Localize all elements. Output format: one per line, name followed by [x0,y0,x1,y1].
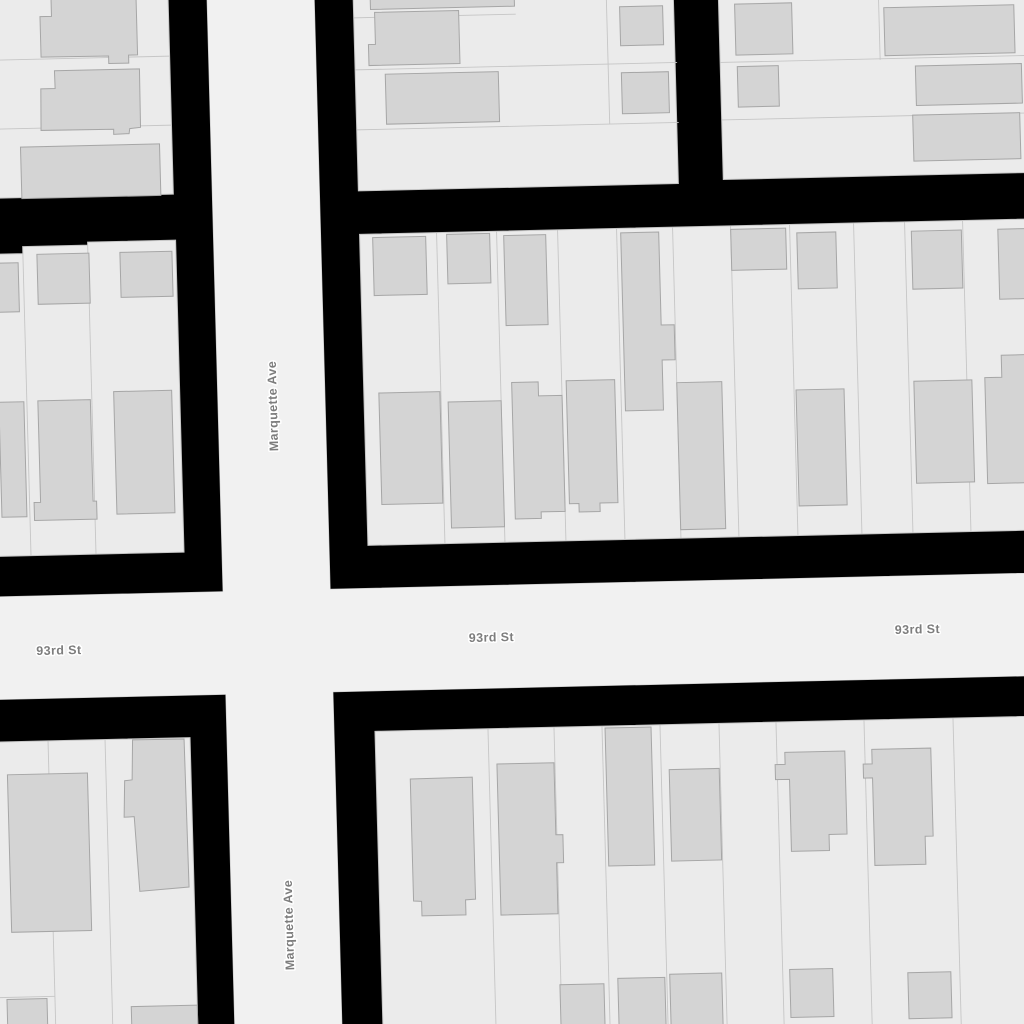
svg-text:Marquette Ave: Marquette Ave [281,880,297,971]
svg-text:Marquette Ave: Marquette Ave [265,361,281,452]
svg-text:93rd St: 93rd St [895,622,941,637]
svg-text:93rd St: 93rd St [36,643,82,658]
svg-text:93rd St: 93rd St [469,630,515,645]
